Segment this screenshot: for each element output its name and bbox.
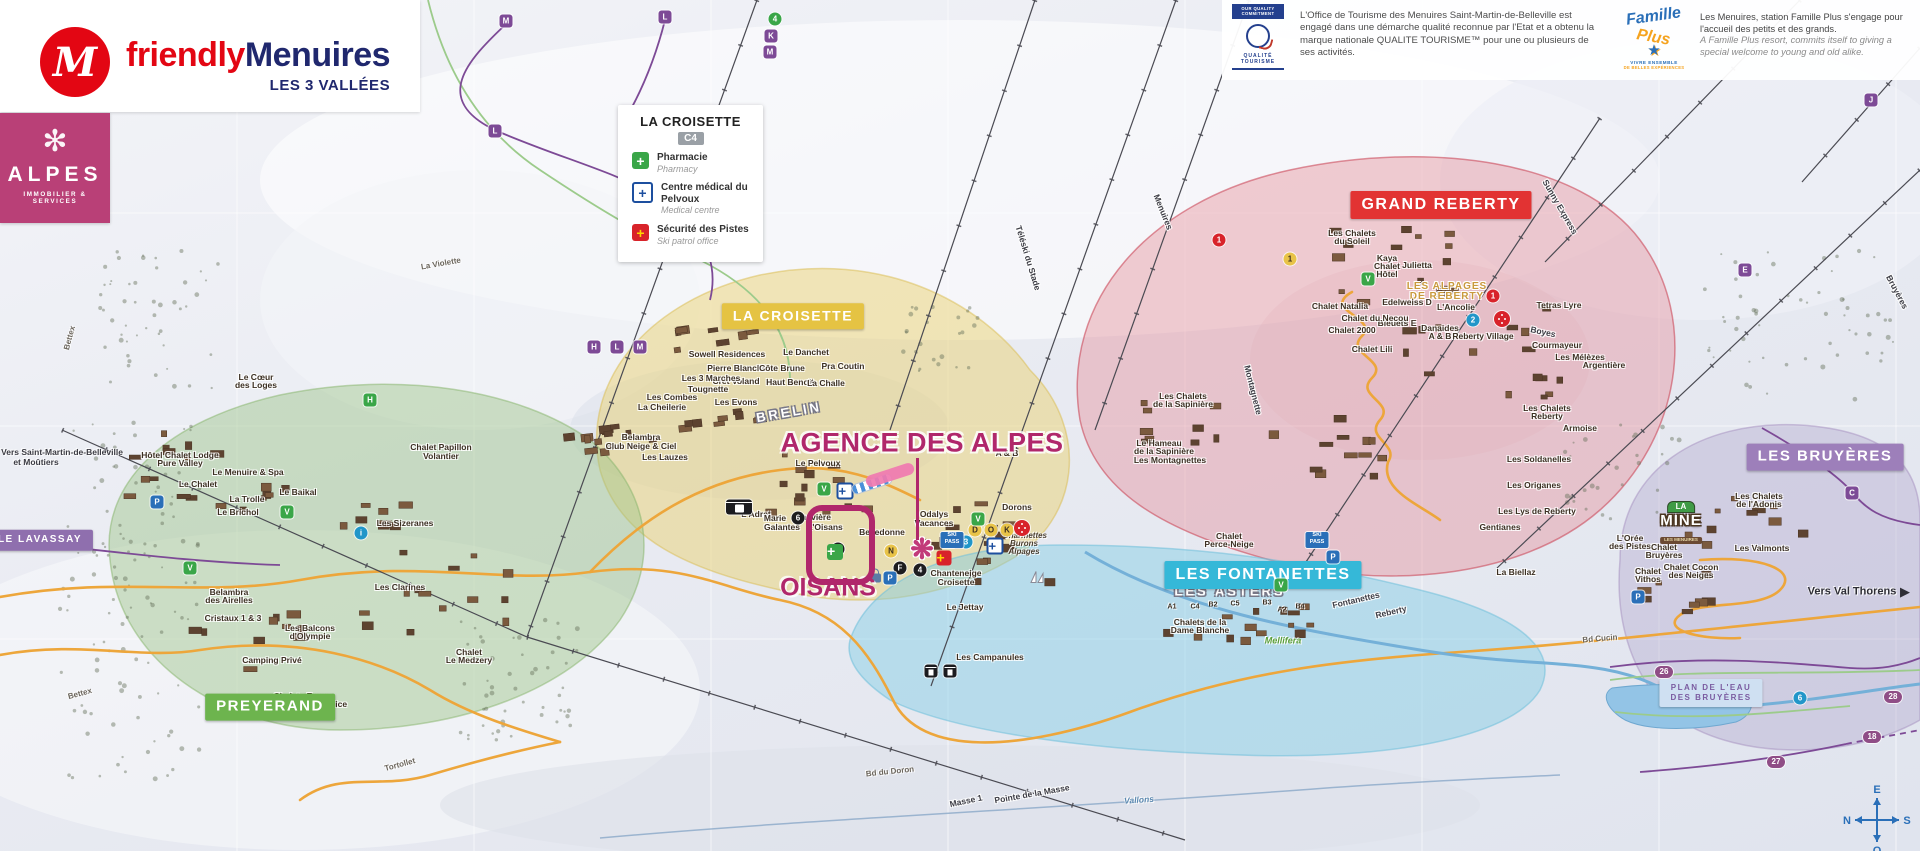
route-badge-e: E xyxy=(1739,264,1752,277)
menuires-logo-icon: M xyxy=(40,27,110,97)
map-label-b4: B4 xyxy=(1296,604,1305,611)
map-label-h-tel: Hôtel xyxy=(1376,270,1397,279)
resort-tagline: LES 3 VALLÉES xyxy=(126,77,390,94)
ski-patrol-cross-icon: + xyxy=(632,224,649,241)
map-label-les-soldanelles: Les Soldanelles xyxy=(1507,455,1571,464)
oisans-highlight-rect xyxy=(806,505,875,585)
route-badge-l: L xyxy=(611,341,624,354)
district-label-la-croisette: LA CROISETTE xyxy=(722,303,864,329)
legend-grid-code: C4 xyxy=(678,132,704,145)
map-label-chalet-lili: Chalet Lili xyxy=(1352,345,1393,354)
map-label-l-ancolie: L'Ancolie xyxy=(1437,303,1475,312)
map-label-boyes: Boyes xyxy=(1530,325,1557,339)
map-label-reberty: Reberty xyxy=(1375,604,1408,619)
route-badge-m: M xyxy=(764,46,777,59)
logo-letter: M xyxy=(53,39,97,86)
district-label-les-fontanettes: LES FONTANETTES xyxy=(1164,561,1361,589)
route-badge-h: H xyxy=(364,394,377,407)
map-label-sunny-express: Sunny Express xyxy=(1541,178,1579,235)
resort-title-friendly: friendly xyxy=(126,36,245,74)
legend-box: LA CROISETTE C4 +PharmaciePharmacy+Centr… xyxy=(618,105,763,262)
pharmacy-cross-icon: + xyxy=(632,152,649,169)
route-badge-v: V xyxy=(281,506,294,519)
resort-logo-panel: M friendlyMenuires LES 3 VALLÉES xyxy=(0,0,420,112)
snowflake-icon: ❋ xyxy=(910,533,933,566)
map-label-mellifera: Mellifera xyxy=(1265,637,1302,646)
map-label-le-pelvoux: Le Pelvoux xyxy=(796,459,841,468)
alpes-agency-logo: ✻ ALPES IMMOBILIER & SERVICES xyxy=(0,113,110,223)
map-label-la-violette: La Violette xyxy=(420,257,461,272)
legend-item-fr: Pharmacie xyxy=(657,152,708,164)
ball-icon xyxy=(1014,520,1030,536)
map-label-chalet-natalia: Chalet Natalia xyxy=(1312,302,1368,311)
legend-item-pharmacie: +PharmaciePharmacy xyxy=(632,152,763,174)
resort-title-menuires: Menuires xyxy=(245,36,390,74)
route-badge-2: 2 xyxy=(1467,314,1480,327)
route-badge-i: i xyxy=(355,527,368,540)
route-badge-v: V xyxy=(972,513,985,526)
map-label-b3: B3 xyxy=(1263,600,1272,607)
map-label-les-lys-de-reberty: Les Lys de Reberty xyxy=(1498,507,1576,516)
route-badge-p: P xyxy=(151,496,164,509)
map-label-la-challe: La Challe xyxy=(807,379,845,388)
map-label-dame-blanche: Dame Blanche xyxy=(1171,626,1230,635)
route-badge-m: M xyxy=(634,341,647,354)
legend-item-en: Medical centre xyxy=(661,205,763,216)
map-label-du-soleil: du Soleil xyxy=(1334,237,1369,246)
map-label-reberty-village: Reberty Village xyxy=(1452,332,1513,341)
la-mine-badge: LAMINELES MENUIRES xyxy=(1660,496,1702,546)
qualite-q-icon xyxy=(1246,24,1270,48)
route-badge-26: 26 xyxy=(1655,666,1673,678)
map-label-les-evons: Les Evons xyxy=(715,398,758,407)
map-label-reberty: Reberty xyxy=(1531,412,1563,421)
route-badge-l: L xyxy=(489,125,502,138)
map-label-a2: A2 xyxy=(1278,607,1287,614)
map-label-de-la-sapini-re: de la Sapinière xyxy=(1153,400,1213,409)
patrol-icon: + xyxy=(937,551,952,566)
map-label-le-brichol: Le Brichol xyxy=(217,508,259,517)
ball-icon xyxy=(1494,311,1510,327)
map-label-les-campanules: Les Campanules xyxy=(956,653,1024,662)
map-label-des-airelles: des Airelles xyxy=(205,596,252,605)
map-label-de-l-adonis: de l'Adonis xyxy=(1736,500,1781,509)
map-label-b2: B2 xyxy=(1209,602,1218,609)
route-badge-n: N xyxy=(885,545,898,558)
agence-des-alpes-label: AGENCE DES ALPES xyxy=(780,428,1063,459)
resort-map: ESON Sowell ResidencesPierre BlancheCrêt… xyxy=(0,0,1920,851)
legend-title: LA CROISETTE xyxy=(618,114,763,129)
map-label-layer: Sowell ResidencesPierre BlancheCrêt Vola… xyxy=(0,0,1920,851)
map-label-les-3-marches: Les 3 Marches xyxy=(682,374,741,383)
skipass-icon: SKIPASS xyxy=(941,532,964,548)
legend-item-centre-m-dical-du-pelvoux: +Centre médical du PelvouxMedical centre xyxy=(632,182,763,216)
map-label-camping-priv: Camping Privé xyxy=(242,656,302,665)
district-label-plan-de-l-eau: PLAN DE L'EAUDES BRUYÈRES xyxy=(1659,679,1762,707)
map-label-le-danchet: Le Danchet xyxy=(783,348,829,357)
map-label-montagnette: Montagnette xyxy=(1243,364,1263,415)
route-badge-4: 4 xyxy=(769,13,782,26)
lift-icon xyxy=(925,665,938,678)
gondola-icon xyxy=(726,500,752,515)
map-label-chalet-du-necou: Chalet du Necou xyxy=(1341,314,1408,323)
route-badge-p: P xyxy=(1327,551,1340,564)
legend-item-en: Ski patrol office xyxy=(657,236,749,247)
qualite-logo-text: QUALITÉ TOURISME xyxy=(1232,53,1284,65)
route-badge-p: P xyxy=(1632,591,1645,604)
route-badge-v: V xyxy=(818,483,831,496)
route-badge-c: C xyxy=(1846,487,1859,500)
map-label-fontanettes: Fontanettes xyxy=(1332,590,1381,609)
route-badge-v: V xyxy=(1362,273,1375,286)
medical-icon: + xyxy=(987,538,1004,555)
map-label-les-montagnettes: Les Montagnettes xyxy=(1134,456,1206,465)
map-label-chalet-2000: Chalet 2000 xyxy=(1328,326,1375,335)
map-label-c-te-brune: Côte Brune xyxy=(759,364,805,373)
lift-icon xyxy=(944,665,957,678)
map-label-a1: A1 xyxy=(1168,604,1177,611)
map-label-edelweiss-d: Edelweiss D xyxy=(1382,298,1432,307)
map-label-les-sizeranes: Les Sizeranes xyxy=(377,519,434,528)
route-badge-m: M xyxy=(500,15,513,28)
legend-item-fr: Sécurité des Pistes xyxy=(657,224,749,236)
map-label-vallons: Vallons xyxy=(1124,795,1154,806)
district-label-les-bruy-res: LES BRUYÈRES xyxy=(1747,444,1904,471)
map-label-brelin: BRELIN xyxy=(755,400,823,424)
map-label-pure-valley: Pure Valley xyxy=(157,459,202,468)
route-badge-28: 28 xyxy=(1884,691,1902,703)
route-badge-18: 18 xyxy=(1863,731,1881,743)
route-badge-h: H xyxy=(588,341,601,354)
qualite-description: L'Office de Tourisme des Menuires Saint-… xyxy=(1300,10,1606,60)
map-label-les-valmonts: Les Valmonts xyxy=(1735,544,1790,553)
qualite-banner: OUR QUALITY COMMITMENT xyxy=(1232,4,1284,19)
map-label-pierre-blanche: Pierre Blanche xyxy=(707,364,767,373)
map-label-courmayeur: Courmayeur xyxy=(1532,341,1582,350)
famille-plus-text-fr: Les Menuires, station Famille Plus s'eng… xyxy=(1700,12,1903,34)
map-label-masse-1: Masse 1 xyxy=(949,793,983,808)
route-badge-k: K xyxy=(1001,524,1014,537)
route-badge-1: 1 xyxy=(1487,290,1500,303)
map-label-croisette: Croisette xyxy=(938,578,975,587)
route-badge-v: V xyxy=(184,562,197,575)
la-mine-base: LES MENUIRES xyxy=(1660,537,1702,544)
map-label-les-lauzes: Les Lauzes xyxy=(642,453,688,462)
arrow-e-icon: ▶ xyxy=(1900,584,1910,600)
route-badge-j: J xyxy=(1865,94,1878,107)
route-badge-o: O xyxy=(985,524,998,537)
map-label-vithos: Vithos xyxy=(1635,575,1661,584)
map-label-tortollet: Tortollet xyxy=(384,757,416,773)
famille-plus-text-en: A Famille Plus resort, commits itself to… xyxy=(1700,35,1892,57)
map-label-c5: C5 xyxy=(1231,601,1240,608)
map-label-la-biellaz: La Biellaz xyxy=(1496,568,1535,577)
map-label-julietta: Julietta xyxy=(1402,261,1432,270)
map-label-et-mo-tiers: et Moûtiers xyxy=(13,458,58,467)
route-badge-6: 6 xyxy=(1794,692,1807,705)
map-label-d-olympie: d'Olympie xyxy=(290,632,331,641)
map-label-vers-saint-martin-de-belleville: Vers Saint-Martin-de-Belleville xyxy=(1,448,123,457)
route-badge-1: 1 xyxy=(1213,234,1226,247)
map-label-les-origanes: Les Origanes xyxy=(1507,481,1561,490)
district-label-grand-reberty: GRAND REBERTY xyxy=(1350,191,1531,219)
map-label-la-trolle: La Trolle xyxy=(230,495,265,504)
route-badge-l: L xyxy=(659,11,672,24)
sled-icon xyxy=(865,469,915,481)
route-badge-k: K xyxy=(765,30,778,43)
map-label-pra-coutin: Pra Coutin xyxy=(822,362,865,371)
medical-icon: + xyxy=(837,483,854,500)
famille-plus-sub2: DE BELLES EXPÉRIENCES xyxy=(1618,65,1690,70)
map-label-club-neige-ciel: Club Neige & Ciel xyxy=(606,442,677,451)
map-label-bettex: Bettex xyxy=(63,325,77,351)
map-label-dorons: Dorons xyxy=(1002,503,1032,512)
map-label-bruy-res: Bruyères xyxy=(1885,274,1910,311)
district-label-le-lavassay: LE LAVASSAY xyxy=(0,530,93,551)
map-label-des-loges: des Loges xyxy=(235,381,277,390)
legend-item-s-curit-des-pistes: +Sécurité des PistesSki patrol office xyxy=(632,224,763,246)
map-label-argenti-re: Argentière xyxy=(1583,361,1626,370)
map-label-les-clarines: Les Clarines xyxy=(375,583,426,592)
route-badge-27: 27 xyxy=(1767,756,1785,768)
route-badge-p: P xyxy=(884,572,897,585)
agence-pointer-line xyxy=(916,458,919,540)
alpes-snowflake-icon: ✻ xyxy=(0,127,110,157)
famille-plus-fa: Famille xyxy=(1625,4,1682,29)
map-label-alpages: Alpages xyxy=(1008,548,1039,556)
medical-cross-icon: + xyxy=(632,182,653,203)
la-mine-main: MINE xyxy=(1660,513,1702,528)
map-label-volantier: Volantier xyxy=(423,452,459,461)
map-label-tetras-lyre: Tetras Lyre xyxy=(1537,301,1582,310)
map-label-menuires: Menuires xyxy=(1152,193,1174,231)
map-label-les-combes: Les Combes xyxy=(647,393,698,402)
legend-items: +PharmaciePharmacy+Centre médical du Pel… xyxy=(618,152,763,246)
alpes-name: ALPES xyxy=(0,163,110,187)
legend-item-fr: Centre médical du Pelvoux xyxy=(661,182,763,205)
map-label-t-l-ski-du-stade: Téléski du Stade xyxy=(1014,225,1042,292)
map-label-le-menuire-spa: Le Menuire & Spa xyxy=(212,468,283,477)
qualite-tourisme-logo: OUR QUALITY COMMITMENT QUALITÉ TOURISME xyxy=(1232,4,1284,70)
certification-panel: OUR QUALITY COMMITMENT QUALITÉ TOURISME … xyxy=(1222,0,1920,80)
map-label-le-baikal: Le Baikal xyxy=(279,488,316,497)
legend-item-en: Pharmacy xyxy=(657,164,708,175)
map-label-cristaux-1-3: Cristaux 1 & 3 xyxy=(205,614,262,623)
sails-icon xyxy=(1029,571,1047,584)
route-badge-v: V xyxy=(1275,579,1288,592)
map-label-la-cheilerie: La Cheilerie xyxy=(638,403,686,412)
map-label-bd-cucin: Bd Cucin xyxy=(1582,633,1618,644)
map-label-des-neiges: des Neiges xyxy=(1669,571,1714,580)
map-label-le-chalet: Le Chalet xyxy=(179,480,217,489)
map-label-a-b: A & B xyxy=(1429,332,1452,341)
map-label-bruy-res: Bruyères xyxy=(1646,551,1683,560)
map-label-sowell-residences: Sowell Residences xyxy=(689,350,766,359)
map-label-bettex: Bettex xyxy=(67,687,93,701)
district-label-preyerand: PREYERAND xyxy=(205,694,335,721)
alpes-subtitle: IMMOBILIER & SERVICES xyxy=(0,191,110,205)
map-label-perce-neige: Perce-Neige xyxy=(1204,540,1253,549)
map-label-c4: C4 xyxy=(1191,604,1200,611)
route-badge-1: 1 xyxy=(1284,253,1297,266)
map-label-vacances: Vacances xyxy=(915,519,954,528)
famille-plus-description: Les Menuires, station Famille Plus s'eng… xyxy=(1700,12,1914,58)
qualite-rule xyxy=(1232,68,1284,70)
resort-title: friendlyMenuires LES 3 VALLÉES xyxy=(126,36,390,94)
map-label-le-medzery: Le Medzery xyxy=(446,656,492,665)
map-label-pointe-de-la-masse: Pointe de la Masse xyxy=(994,783,1070,805)
skipass-icon: SKIPASS xyxy=(1306,532,1329,548)
map-label-le-jettay: Le Jettay xyxy=(947,603,984,612)
famille-plus-logo: FamillePlus ★ VIVRE ENSEMBLE DE BELLES E… xyxy=(1618,8,1690,70)
map-label-armoise: Armoise xyxy=(1563,424,1597,433)
map-label-vers-val-thorens: Vers Val Thorens xyxy=(1808,587,1897,598)
map-label-bd-du-doron: Bd du Doron xyxy=(865,765,914,778)
route-badge-6: 6 xyxy=(792,512,805,525)
map-label-gentianes: Gentianes xyxy=(1479,523,1520,532)
